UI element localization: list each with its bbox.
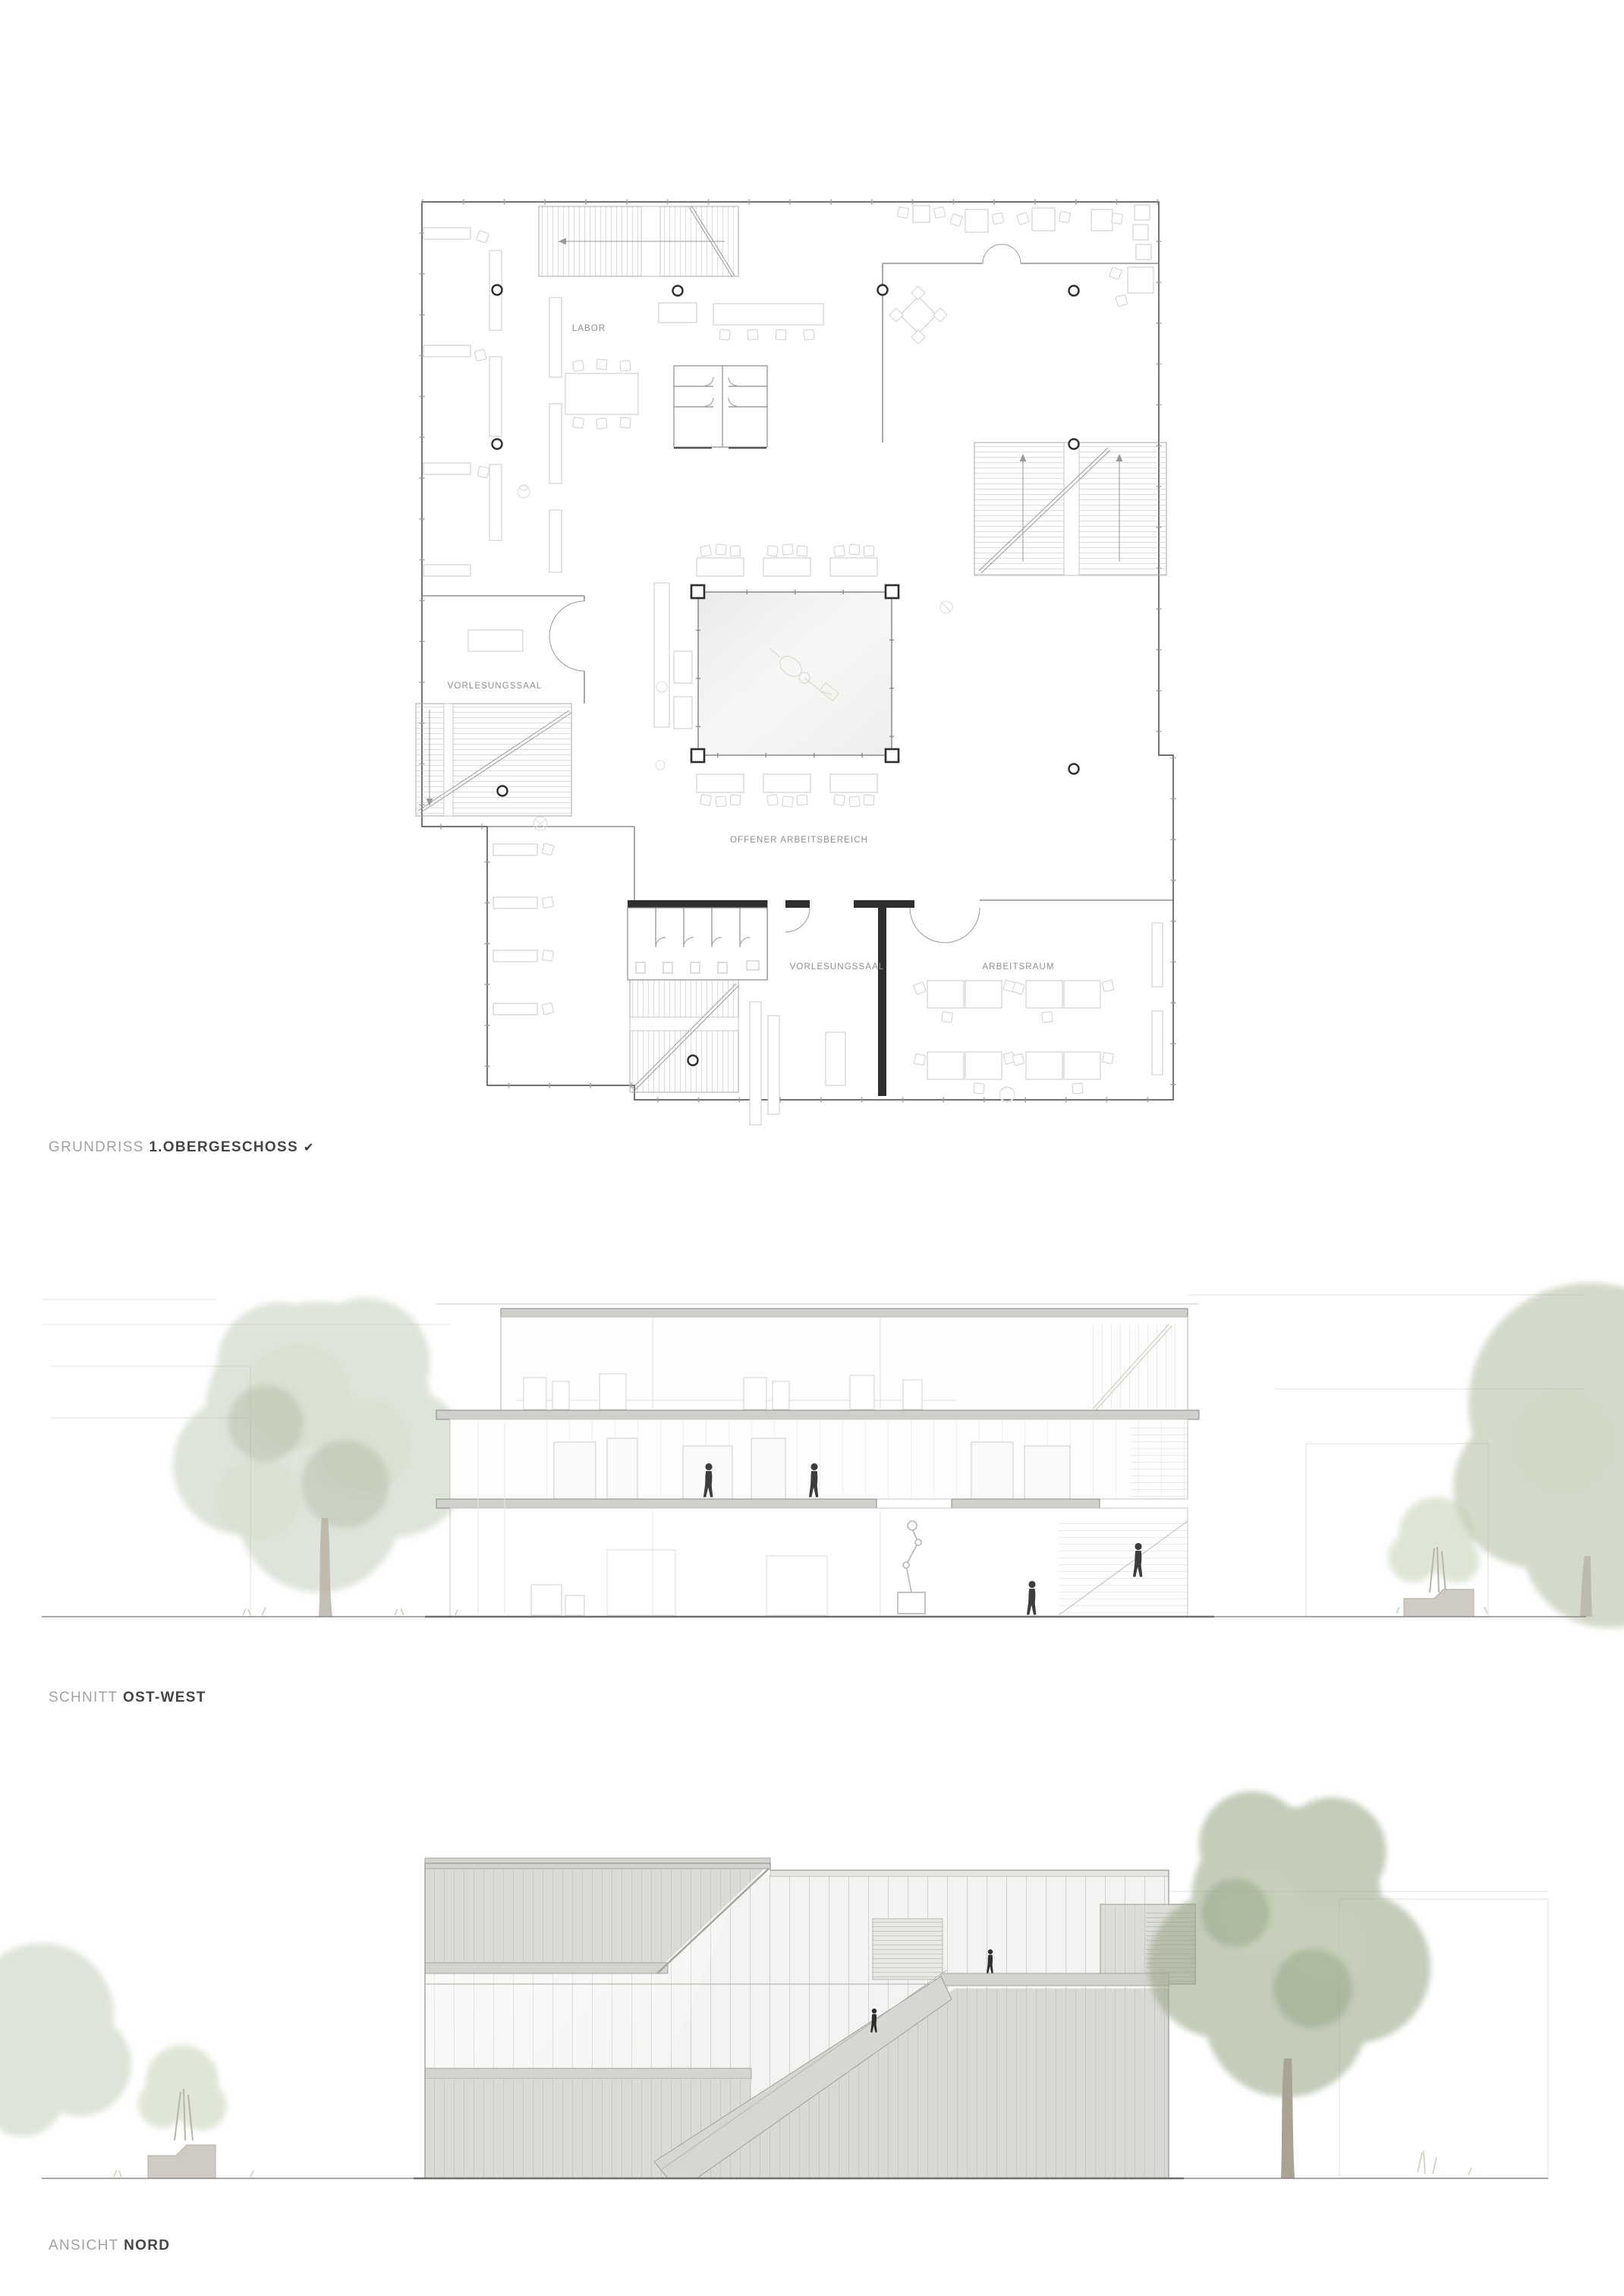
elevation-caption-prefix: ANSICHT (49, 2238, 119, 2253)
label-vorlesungssaal-left: VORLESUNGSSAAL (448, 682, 543, 691)
elevation-building (425, 1858, 1195, 2178)
north-marker-icon: ✔ (304, 1142, 313, 1154)
arbeitsraum-desks (914, 923, 1163, 1094)
section-grass (243, 1607, 1487, 1615)
elevation-caption: ANSICHT NORD (49, 2238, 170, 2254)
label-offener-arbeitsbereich: OFFENER ARBEITSBEREICH (730, 836, 868, 845)
section-caption-title: OST-WEST (123, 1690, 206, 1705)
elevation-planter-tree (138, 2045, 227, 2178)
section-tree-right (1453, 1283, 1624, 1628)
section-planter-tree (1388, 1497, 1480, 1617)
architecture-presentation-board: LABOR VORLESUNGSSAAL OFFENER ARBEITSBERE… (0, 0, 1624, 2296)
elevation-tree-right (1148, 1791, 1430, 2178)
wc-block-north (674, 366, 767, 447)
plan-caption: GRUNDRISS 1.OBERGESCHOSS✔ (49, 1139, 313, 1156)
elevation-drawing (0, 1791, 1548, 2178)
stair-east (974, 443, 1166, 575)
label-arbeitsraum: ARBEITSRAUM (982, 962, 1054, 972)
label-vorlesungssaal-bottom: VORLESUNGSSAAL (790, 962, 885, 972)
plan-caption-title: 1.OBERGESCHOSS (149, 1139, 298, 1155)
elevation-tree-left (0, 1943, 131, 2137)
stair-north (539, 206, 738, 277)
plan-faint-sketches (518, 485, 1015, 1102)
section-drawing (42, 1283, 1624, 1628)
plan-caption-prefix: GRUNDRISS (49, 1139, 144, 1155)
section-caption-prefix: SCHNITT (49, 1690, 118, 1705)
section-robot-arm (898, 1521, 925, 1614)
elevation-caption-title: NORD (124, 2238, 170, 2253)
section-building (436, 1304, 1199, 1617)
atrium-void (691, 585, 899, 762)
stair-west (416, 704, 571, 816)
wc-block-south (628, 908, 767, 980)
floor-plan-drawing: LABOR VORLESUNGSSAAL OFFENER ARBEITSBERE… (416, 202, 1173, 1125)
label-labor: LABOR (572, 324, 606, 333)
stair-south (630, 980, 738, 1092)
section-caption: SCHNITT OST-WEST (49, 1690, 206, 1706)
